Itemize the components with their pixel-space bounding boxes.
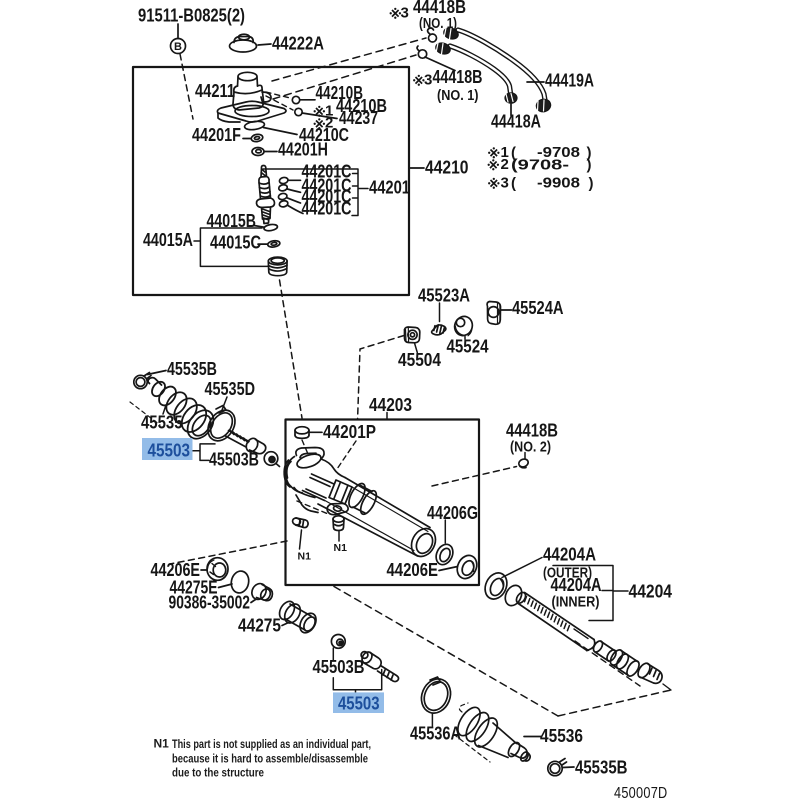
svg-text:because it is hard to assemble: because it is hard to assemble/disassemb… [172,752,368,766]
svg-text:): ) [589,175,594,192]
svg-text:44210: 44210 [425,158,469,178]
svg-text:This part is not supplied as a: This part is not supplied as an individu… [172,737,371,751]
svg-text:(: ( [511,175,516,192]
svg-text:(NO. 2): (NO. 2) [510,440,551,456]
svg-text:45536A: 45536A [410,724,461,744]
svg-text:45535: 45535 [141,413,183,433]
svg-text:44419A: 44419A [545,71,594,91]
svg-text:B: B [174,41,182,53]
svg-text:(9708-: (9708- [511,157,569,174]
svg-text:44201C: 44201C [302,199,352,219]
svg-text:3: 3 [401,5,409,22]
svg-text:44204A: 44204A [543,545,596,565]
svg-text:44201: 44201 [369,178,410,198]
svg-text:44222A: 44222A [272,34,324,54]
svg-text:45535B: 45535B [575,758,628,778]
svg-text:44015A: 44015A [143,230,193,250]
svg-text:due to the structure: due to the structure [172,766,264,780]
svg-text:45523A: 45523A [418,286,470,306]
svg-text:2: 2 [501,156,509,173]
svg-text:44015C: 44015C [210,233,261,253]
svg-text:45503B: 45503B [313,657,365,677]
svg-text:3: 3 [424,72,432,89]
svg-text:44206E: 44206E [387,560,439,580]
svg-text:91511-B0825(2): 91511-B0825(2) [138,6,245,26]
svg-text:N1: N1 [154,737,170,751]
svg-text:450007D: 450007D [614,785,668,800]
svg-text:44418A: 44418A [491,112,541,132]
svg-text:N1: N1 [334,542,348,554]
svg-text:(NO. 1): (NO. 1) [437,88,479,104]
svg-text:3: 3 [501,175,509,192]
svg-text:N1: N1 [298,551,312,563]
svg-text:90386-35002: 90386-35002 [169,593,251,613]
svg-text:44201P: 44201P [323,422,376,442]
svg-text:45524: 45524 [447,337,489,357]
svg-text:45503B: 45503B [209,450,259,470]
svg-text:): ) [587,157,592,174]
svg-text:44201F: 44201F [192,125,241,145]
svg-text:45536: 45536 [540,726,583,746]
svg-text:(NO. 1): (NO. 1) [419,16,457,32]
svg-text:44204A: 44204A [551,575,602,595]
svg-text:(INNER): (INNER) [552,595,600,611]
svg-text:44203: 44203 [369,395,412,415]
svg-text:44418B: 44418B [506,421,558,441]
svg-text:44418B: 44418B [413,0,466,17]
svg-text:-9908: -9908 [537,175,580,192]
svg-text:45535B: 45535B [167,359,217,379]
svg-text:45535D: 45535D [205,379,256,399]
svg-text:44015B: 44015B [207,211,257,231]
svg-text:44204: 44204 [629,582,673,602]
svg-text:44206G: 44206G [427,503,478,523]
svg-text:44418B: 44418B [433,67,483,87]
svg-text:44275: 44275 [238,616,281,636]
svg-text:45504: 45504 [398,350,441,370]
svg-text:45524A: 45524A [512,298,564,318]
svg-text:44211: 44211 [195,81,235,101]
svg-text:44201H: 44201H [278,140,328,160]
svg-text:45503: 45503 [338,694,380,714]
svg-text:45503: 45503 [148,441,191,461]
